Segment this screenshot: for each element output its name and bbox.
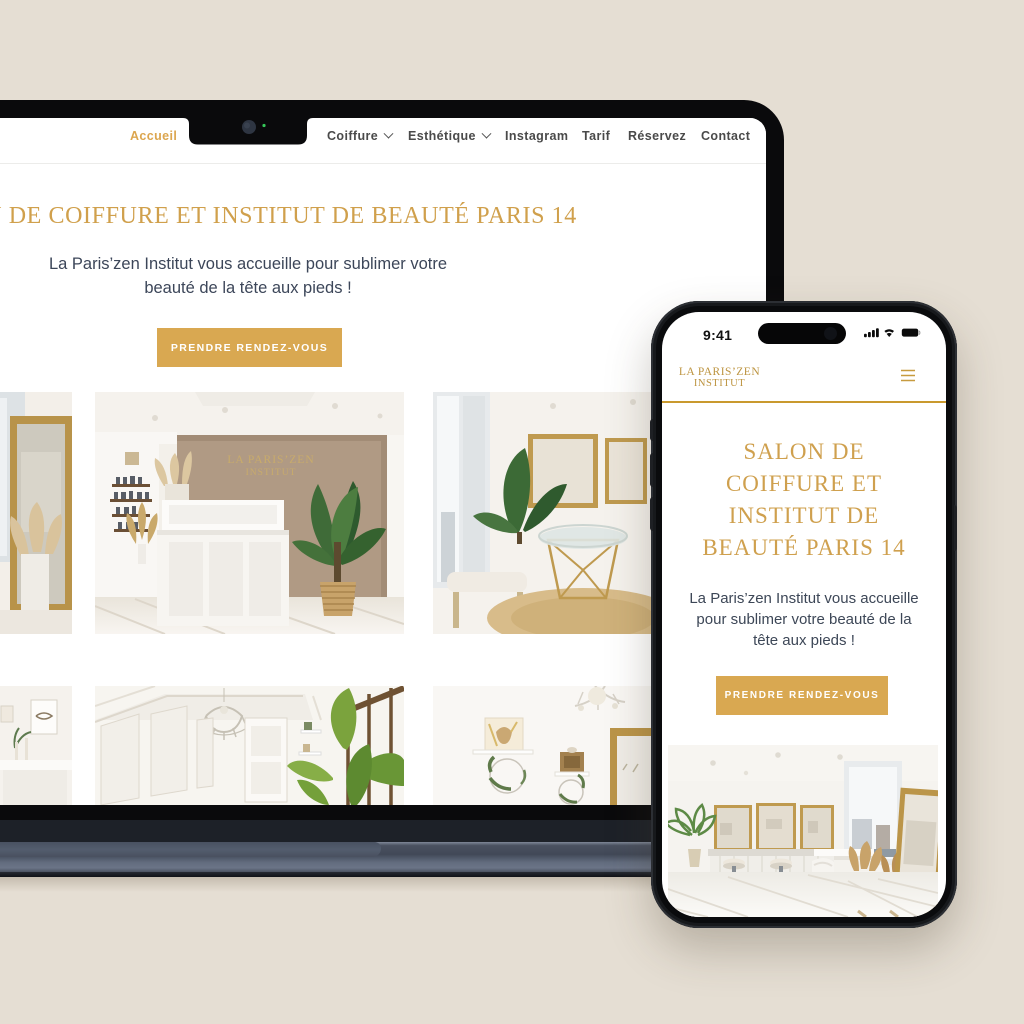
svg-text:INSTITUT: INSTITUT (246, 468, 297, 478)
svg-text:LA PARIS’ZEN: LA PARIS’ZEN (227, 454, 314, 466)
